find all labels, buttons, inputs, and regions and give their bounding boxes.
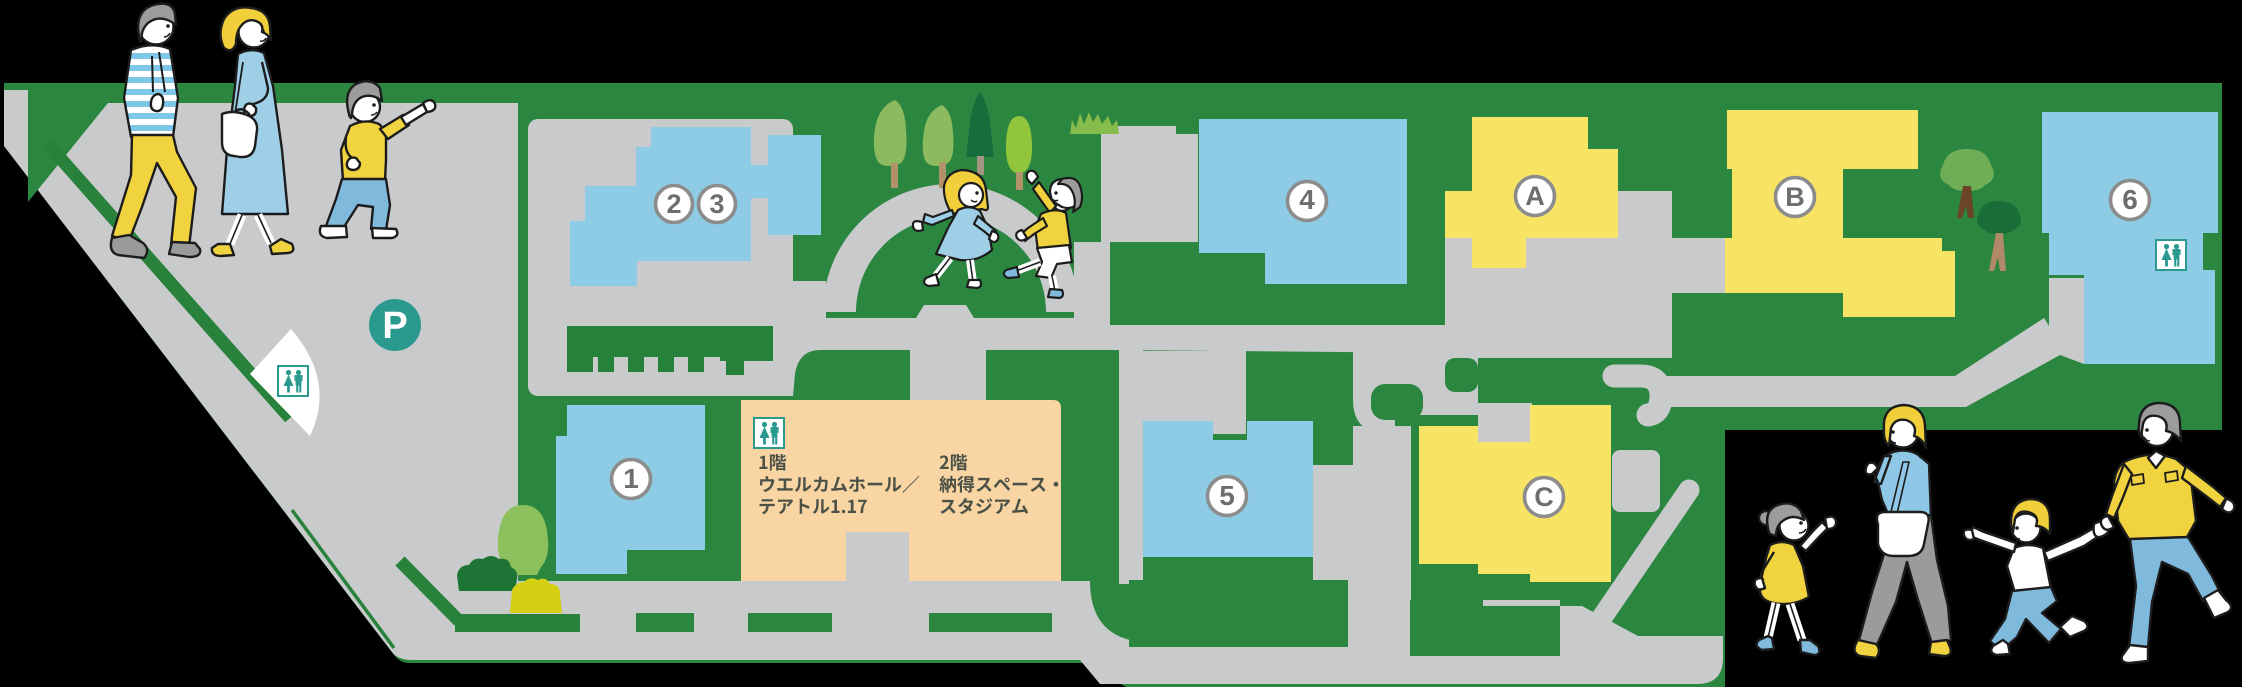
svg-text:A: A bbox=[1525, 181, 1545, 211]
svg-text:5: 5 bbox=[1219, 480, 1235, 511]
svg-text:4: 4 bbox=[1299, 184, 1315, 215]
svg-text:C: C bbox=[1534, 482, 1554, 512]
svg-text:B: B bbox=[1785, 182, 1805, 212]
svg-text:P: P bbox=[382, 305, 407, 347]
svg-text:2: 2 bbox=[666, 189, 681, 219]
svg-text:1: 1 bbox=[623, 463, 639, 494]
svg-text:3: 3 bbox=[709, 189, 724, 219]
svg-text:6: 6 bbox=[2122, 184, 2138, 215]
